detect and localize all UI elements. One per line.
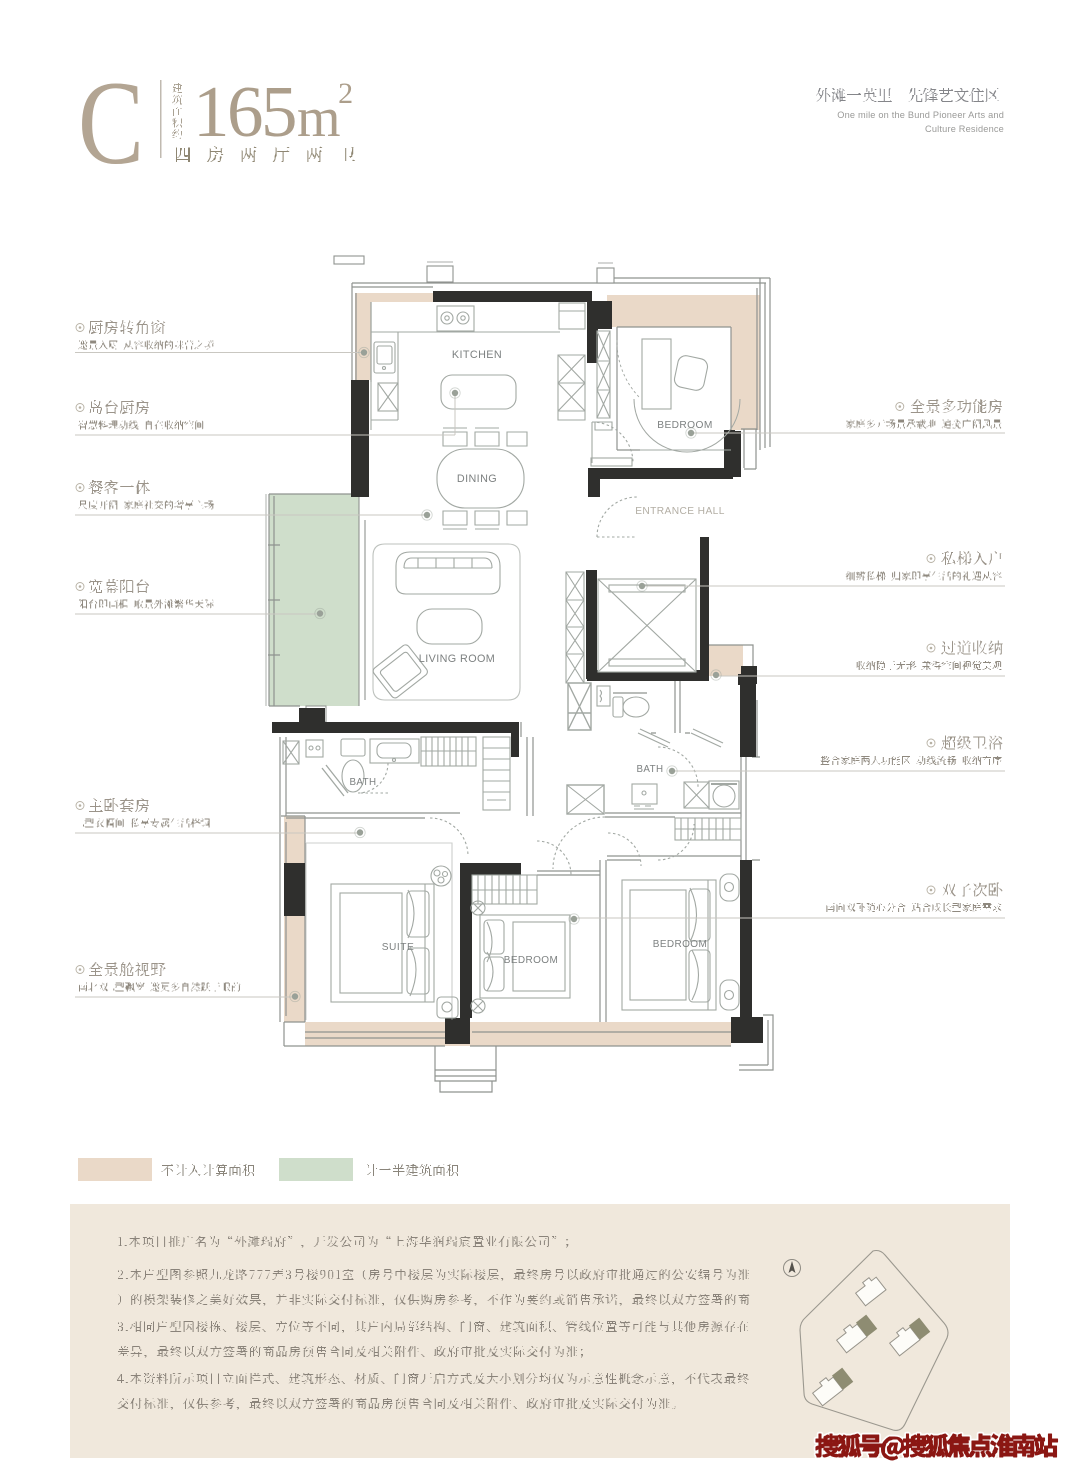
svg-text:KITCHEN: KITCHEN (452, 349, 502, 361)
svg-text:C: C (78, 56, 144, 189)
svg-text:BATH: BATH (349, 777, 376, 788)
svg-text:DINING: DINING (457, 473, 497, 485)
svg-text:BATH: BATH (636, 764, 663, 775)
svg-text:BEDROOM: BEDROOM (504, 955, 558, 966)
svg-text:Culture Residence: Culture Residence (925, 124, 1004, 134)
svg-text:SUITE: SUITE (382, 942, 415, 953)
svg-text:BEDROOM: BEDROOM (657, 420, 712, 431)
svg-text:LIVING ROOM: LIVING ROOM (419, 653, 495, 665)
svg-text:165m2: 165m2 (193, 71, 352, 152)
svg-text:ENTRANCE HALL: ENTRANCE HALL (635, 506, 725, 517)
svg-text:BEDROOM: BEDROOM (653, 939, 707, 950)
svg-text:One mile on the Bund Pioneer A: One mile on the Bund Pioneer Arts and (837, 110, 1004, 120)
